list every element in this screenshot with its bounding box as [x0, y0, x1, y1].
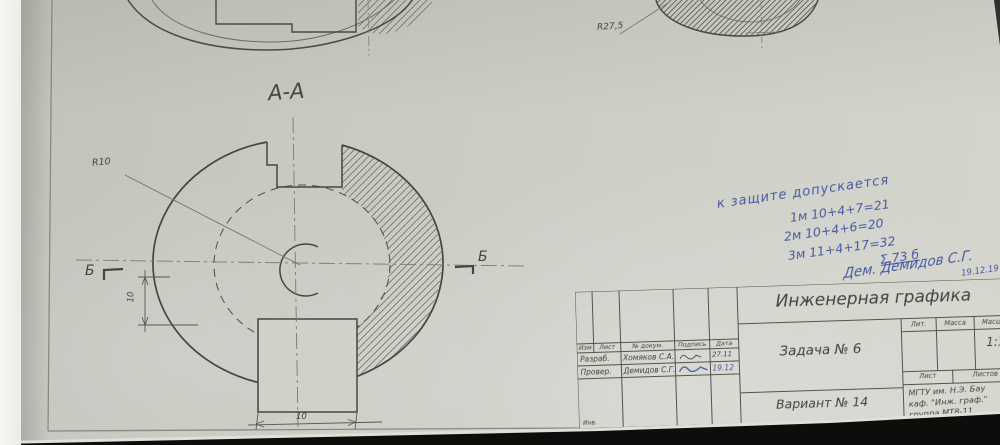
tb-row-name: Хомяков С.А. — [623, 351, 674, 362]
cut-label-left: Б — [85, 263, 95, 279]
tb-col-date: Дата — [710, 340, 739, 348]
tb-row-name: Демидов С.Г. — [623, 364, 675, 375]
tb-row-date: 27.11 — [712, 350, 732, 359]
radius-small-label: R10 — [92, 156, 112, 169]
top-right-partial-view — [620, 0, 818, 49]
tb-row-date: 19.12 — [712, 363, 734, 373]
photographed-drawing-sheet: А-А R10 R27,5 Б Б 10 10 к защите допуска… — [0, 0, 1000, 445]
tb-col-list: Лист — [594, 344, 621, 352]
radius-top-label: R27,5 — [597, 21, 624, 33]
signature-squiggle-ink — [678, 362, 710, 376]
square-boss — [258, 319, 357, 412]
cut-label-right: Б — [478, 249, 488, 265]
tb-scale-value: 1:1 — [975, 334, 1000, 349]
tb-col-izm: Изм — [577, 344, 594, 352]
tb-scale-header: Масшт. — [974, 317, 1000, 326]
signature-squiggle-pencil — [679, 351, 707, 362]
tb-lit-header: Лит. — [901, 320, 936, 329]
dim-vertical-label: 10 — [126, 292, 136, 303]
section-view-a-a — [76, 117, 524, 427]
section-label: А-А — [267, 79, 305, 105]
radius-leader — [125, 175, 300, 265]
tb-row-role: Разраб. — [580, 353, 610, 363]
tb-mass-header: Масса — [936, 318, 974, 327]
tb-bottom-left-label: Инв. — [583, 419, 597, 426]
tb-row-role: Провер. — [580, 366, 611, 376]
title-block: Инженерная графика Задача № 6 Вариант № … — [575, 278, 1000, 430]
tb-sheets-header: Листов — [953, 369, 1000, 379]
tb-col-sign: Подпись — [675, 341, 710, 349]
top-left-partial-view — [128, 0, 433, 56]
tb-sheet-header: Лист — [903, 371, 953, 381]
adjacent-sheet-edge — [0, 0, 21, 445]
dim-bottom-label: 10 — [296, 412, 307, 422]
